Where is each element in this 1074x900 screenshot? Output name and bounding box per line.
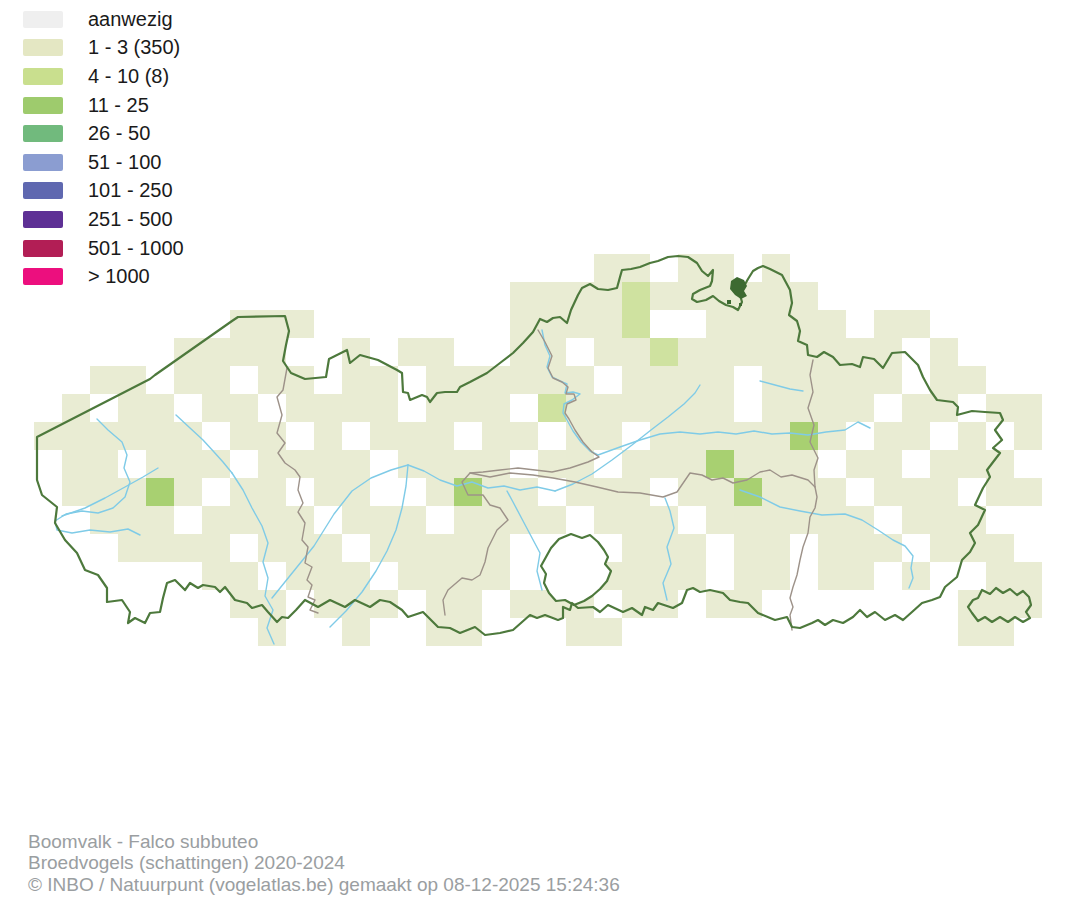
grid-cell [566,366,594,394]
grid-cell [258,338,286,366]
grid-cell [706,506,734,534]
legend-label: 101 - 250 [88,179,173,202]
grid-cell [566,478,594,506]
grid-cell [762,310,790,338]
grid-cell [902,310,930,338]
grid-cell [594,506,622,534]
grid-cell [958,366,986,394]
grid-cell [762,478,790,506]
grid-cell [762,282,790,310]
grid-cell [510,590,538,618]
grid-cell [146,478,174,506]
grid-cell [846,450,874,478]
grid-cell [846,338,874,366]
grid-cell [454,534,482,562]
grid-cell [398,422,426,450]
grid-cell [734,338,762,366]
grid-cell [286,310,314,338]
grid-cell [118,478,146,506]
grid-cell [426,562,454,590]
legend-swatch [23,39,63,56]
grid-cell [482,422,510,450]
grid-cell [482,506,510,534]
grid-cell [986,534,1014,562]
grid-cell [538,338,566,366]
grid-cell [650,394,678,422]
legend-item: 1 - 3 (350) [23,34,184,63]
grid-cell [930,338,958,366]
grid-cell [622,562,650,590]
grid-cell [230,310,258,338]
grid-cell [678,254,706,282]
legend-swatch [23,268,63,285]
grid-cell [790,338,818,366]
grid-cell [370,506,398,534]
grid-cell [426,534,454,562]
grid-cell [286,450,314,478]
grid-cell [622,590,650,618]
grid-cell [314,562,342,590]
grid-cell [482,366,510,394]
grid-cell [846,366,874,394]
grid-cell [202,338,230,366]
grid-cell [342,366,370,394]
grid-cell [958,450,986,478]
grid-cell [454,394,482,422]
grid-cell [230,338,258,366]
grid-cell [258,450,286,478]
legend-label: 11 - 25 [88,94,149,117]
grid-cell [706,478,734,506]
grid-cell [706,590,734,618]
grid-cells [34,254,1042,646]
legend-item: 251 - 500 [23,205,184,234]
grid-cell [958,618,986,646]
grid-cell [622,534,650,562]
legend-label: 26 - 50 [88,122,150,145]
legend-label: aanwezig [88,8,173,31]
grid-cell [986,618,1014,646]
grid-cell [538,282,566,310]
grid-cell [342,506,370,534]
legend-item: aanwezig [23,5,184,34]
grid-cell [930,478,958,506]
legend-swatch [23,154,63,171]
grid-cell [258,506,286,534]
grid-cell [538,506,566,534]
grid-cell [62,422,90,450]
grid-cell [790,310,818,338]
grid-cell [454,506,482,534]
grid-cell [118,422,146,450]
grid-cell [846,534,874,562]
grid-cell [902,562,930,590]
grid-cell [1014,562,1042,590]
grid-cell [762,534,790,562]
grid-cell [538,450,566,478]
grid-cell [258,422,286,450]
legend-item: 26 - 50 [23,119,184,148]
grid-cell [342,450,370,478]
grid-cell [314,450,342,478]
legend-swatch [23,125,63,142]
grid-cell [202,534,230,562]
grid-cell [902,478,930,506]
grid-cell [622,310,650,338]
grid-cell [762,562,790,590]
footer-attribution: Boomvalk - Falco subbuteo Broedvogels (s… [28,831,620,895]
grid-cell [734,310,762,338]
grid-cell [426,338,454,366]
species-title: Boomvalk - Falco subbuteo [28,831,620,852]
grid-cell [286,506,314,534]
grid-cell [454,450,482,478]
grid-cell [426,366,454,394]
grid-cell [258,618,286,646]
grid-cell [566,394,594,422]
grid-cell [734,506,762,534]
grid-cell [202,394,230,422]
grid-cell [398,562,426,590]
grid-cell [230,394,258,422]
grid-cell [118,534,146,562]
grid-cell [958,422,986,450]
grid-cell [706,310,734,338]
grid-cell [790,282,818,310]
grid-cell [510,310,538,338]
grid-cell [90,478,118,506]
grid-cell [678,422,706,450]
grid-cell [678,394,706,422]
legend-item: 11 - 25 [23,91,184,120]
grid-cell [818,366,846,394]
grid-cell [230,590,258,618]
grid-cell [650,338,678,366]
grid-cell [706,366,734,394]
grid-cell [846,394,874,422]
grid-cell [566,618,594,646]
legend-swatch [23,182,63,199]
grid-cell [874,310,902,338]
grid-cell [818,562,846,590]
grid-cell [538,394,566,422]
grid-cell [930,506,958,534]
grid-cell [342,338,370,366]
legend-item: 501 - 1000 [23,234,184,263]
grid-cell [594,254,622,282]
legend-item: 4 - 10 (8) [23,62,184,91]
grid-cell [398,506,426,534]
grid-cell [874,478,902,506]
grid-cell [258,478,286,506]
grid-cell [706,422,734,450]
grid-cell [174,450,202,478]
grid-cell [174,478,202,506]
grid-cell [734,562,762,590]
grid-cell [146,450,174,478]
grid-cell [846,562,874,590]
grid-cell [398,534,426,562]
grid-cell [622,450,650,478]
grid-cell [874,534,902,562]
grid-cell [930,534,958,562]
grid-cell [426,478,454,506]
legend-swatch [23,240,63,257]
grid-cell [818,534,846,562]
legend-label: 1 - 3 (350) [88,36,180,59]
grid-cell [818,310,846,338]
grid-cell [762,506,790,534]
legend: aanwezig1 - 3 (350)4 - 10 (8)11 - 2526 -… [23,5,184,291]
grid-cell [398,450,426,478]
grid-cell [594,310,622,338]
brussels-enclave [541,534,611,605]
grid-cell [902,394,930,422]
page: aanwezig1 - 3 (350)4 - 10 (8)11 - 2526 -… [0,0,1074,900]
grid-cell [706,254,734,282]
grid-cell [930,450,958,478]
grid-cell [818,506,846,534]
grid-cell [258,534,286,562]
grid-cell [790,394,818,422]
grid-cell [90,450,118,478]
grid-cell [650,282,678,310]
grid-cell [762,366,790,394]
grid-cell [622,366,650,394]
grid-cell [370,366,398,394]
grid-cell [314,394,342,422]
grid-cell [622,282,650,310]
grid-cell [146,422,174,450]
grid-cell [314,422,342,450]
grid-cell [314,478,342,506]
legend-swatch [23,211,63,228]
legend-label: 501 - 1000 [88,237,184,260]
grid-cell [902,506,930,534]
grid-cell [594,394,622,422]
grid-cell [734,534,762,562]
legend-swatch [23,68,63,85]
grid-cell [762,338,790,366]
grid-cell [426,394,454,422]
grid-cell [1014,478,1042,506]
grid-cell [482,394,510,422]
grid-cell [286,394,314,422]
grid-cell [230,562,258,590]
grid-cell [818,394,846,422]
grid-cell [622,394,650,422]
grid-cell [146,394,174,422]
grid-cell [510,366,538,394]
grid-cell [510,506,538,534]
grid-cell [426,590,454,618]
grid-cell [482,562,510,590]
grid-cell [230,422,258,450]
grid-cell [678,534,706,562]
grid-cell [594,422,622,450]
grid-cell [370,422,398,450]
legend-item: 51 - 100 [23,148,184,177]
grid-cell [930,366,958,394]
grid-cell [930,394,958,422]
grid-cell [510,422,538,450]
grid-cell [370,394,398,422]
grid-cell [426,618,454,646]
grid-cell [174,534,202,562]
grid-cell [454,478,482,506]
grid-cell [174,366,202,394]
grid-cell [706,338,734,366]
grid-cell [258,366,286,394]
survey-subtitle: Broedvogels (schattingen) 2020-2024 [28,852,620,873]
grid-cell [986,562,1014,590]
grid-cell [706,450,734,478]
grid-cell [342,394,370,422]
grid-cell [510,282,538,310]
grid-cell [90,366,118,394]
grid-cell [762,422,790,450]
grid-cell [1014,422,1042,450]
legend-item: 101 - 250 [23,177,184,206]
legend-swatch [23,11,63,28]
legend-label: 251 - 500 [88,208,173,231]
grid-cell [594,618,622,646]
grid-cell [734,422,762,450]
grid-cell [874,450,902,478]
grid-cell [118,366,146,394]
grid-cell [902,422,930,450]
legend-swatch [23,97,63,114]
grid-cell [1014,394,1042,422]
grid-cell [426,422,454,450]
grid-cell [818,478,846,506]
grid-cell [986,394,1014,422]
grid-cell [874,422,902,450]
grid-cell [146,534,174,562]
grid-cell [762,394,790,422]
grid-cell [62,450,90,478]
grid-cell [398,338,426,366]
copyright-line: © INBO / Natuurpunt (vogelatlas.be) gema… [28,874,620,895]
grid-cell [678,338,706,366]
grid-cell [258,310,286,338]
grid-cell [594,338,622,366]
grid-cell [538,366,566,394]
grid-cell [790,478,818,506]
grid-cell [650,534,678,562]
grid-cell [202,366,230,394]
grid-cell [510,478,538,506]
grid-cell [874,366,902,394]
grid-cell [118,394,146,422]
grid-cell [678,478,706,506]
grid-cell [706,394,734,422]
legend-item: > 1000 [23,262,184,291]
grid-cell [146,506,174,534]
grid-cell [986,478,1014,506]
grid-cell [678,366,706,394]
grid-cell [342,618,370,646]
grid-cell [678,562,706,590]
grid-cell [286,534,314,562]
legend-label: > 1000 [88,265,150,288]
grid-cell [62,478,90,506]
grid-cell [454,590,482,618]
grid-cell [650,450,678,478]
grid-cell [650,366,678,394]
grid-cell [818,422,846,450]
legend-label: 4 - 10 (8) [88,65,169,88]
grid-cell [622,506,650,534]
grid-cell [622,338,650,366]
grid-cell [482,478,510,506]
legend-label: 51 - 100 [88,151,161,174]
grid-cell [202,506,230,534]
grid-cell [566,282,594,310]
